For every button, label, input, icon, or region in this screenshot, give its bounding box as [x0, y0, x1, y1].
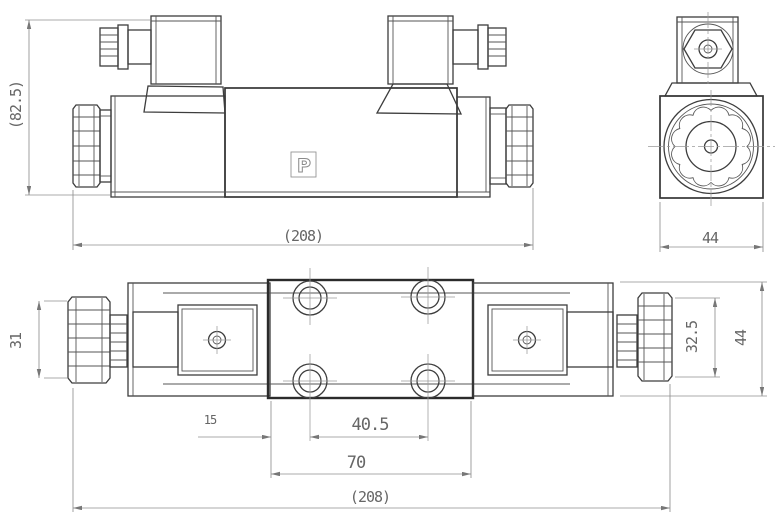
connector-neck-left — [128, 30, 151, 64]
din-connector-left — [100, 16, 221, 84]
dim-block-length: 70 — [347, 453, 366, 473]
knob-left-top — [68, 297, 110, 383]
dim-body-width: 44 — [732, 329, 750, 346]
cable-gland-left — [100, 28, 118, 66]
solenoid-right-top — [473, 283, 613, 396]
brand-logo: P — [291, 152, 316, 177]
valve-body-front — [111, 88, 490, 197]
dim-knob-right-od: 32.5 — [683, 321, 701, 353]
terminal-box-left — [178, 305, 257, 375]
connector-neck-right — [453, 30, 478, 64]
dim-hole-spacing: 40.5 — [352, 415, 389, 435]
end-connector-housing — [665, 12, 757, 96]
knob-right-top — [638, 293, 672, 381]
front-view-dimensions: (82.5) (208) — [7, 20, 533, 250]
drawing-sheet: P (82.5) (208) — [0, 0, 779, 532]
coil-block-left — [133, 312, 178, 367]
solenoid-left-top — [128, 283, 570, 396]
solenoid-right-front — [457, 97, 506, 197]
knob-left-front — [73, 105, 100, 187]
dim-front-length: (208) — [283, 227, 323, 245]
collar-left-front — [100, 110, 111, 182]
mounting-hole-tr — [401, 267, 455, 324]
end-body — [648, 90, 775, 206]
brand-logo-letter: P — [297, 155, 311, 177]
solenoid-left-front — [111, 96, 225, 197]
knob-right-front — [506, 105, 533, 187]
dim-top-length: (208) — [350, 488, 390, 506]
drawing-canvas: P (82.5) (208) — [0, 0, 779, 532]
dim-edge-to-hole: 15 — [204, 413, 217, 427]
coil-block-right — [567, 312, 613, 367]
front-view: P — [73, 16, 533, 197]
dim-end-width: 44 — [702, 229, 719, 247]
coil-cap-left — [144, 86, 225, 113]
end-view: 44 — [648, 12, 775, 252]
end-view-dimensions: 44 — [660, 202, 763, 252]
terminal-box-right — [488, 305, 567, 375]
dim-front-height: (82.5) — [7, 81, 25, 129]
collar-left-top — [110, 315, 127, 367]
din-connector-right — [388, 16, 506, 84]
mounting-hole-tl — [283, 268, 337, 325]
cable-gland-right — [488, 28, 506, 66]
dim-knob-left-od: 31 — [7, 332, 25, 349]
collar-right-top — [617, 315, 637, 367]
